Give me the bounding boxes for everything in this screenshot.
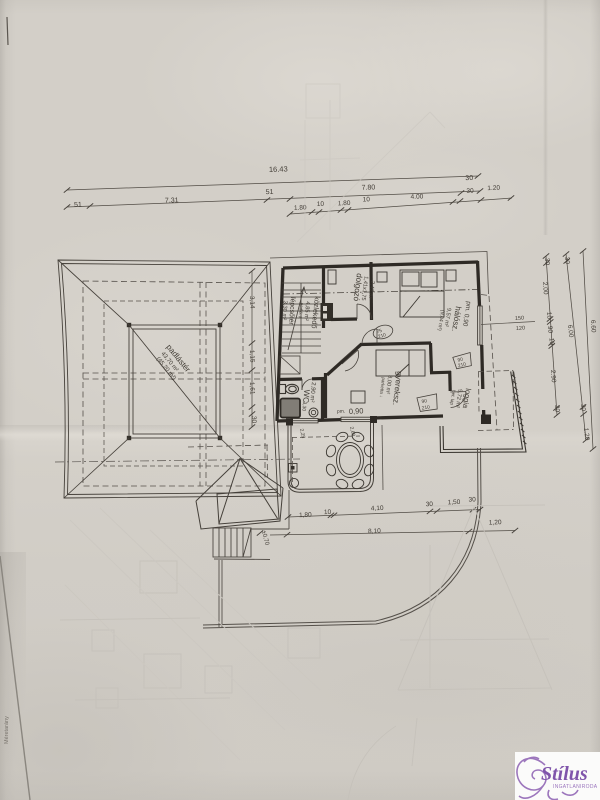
svg-text:Stílus: Stílus xyxy=(541,763,588,785)
svg-text:INGATLANIRODA: INGATLANIRODA xyxy=(553,784,598,790)
